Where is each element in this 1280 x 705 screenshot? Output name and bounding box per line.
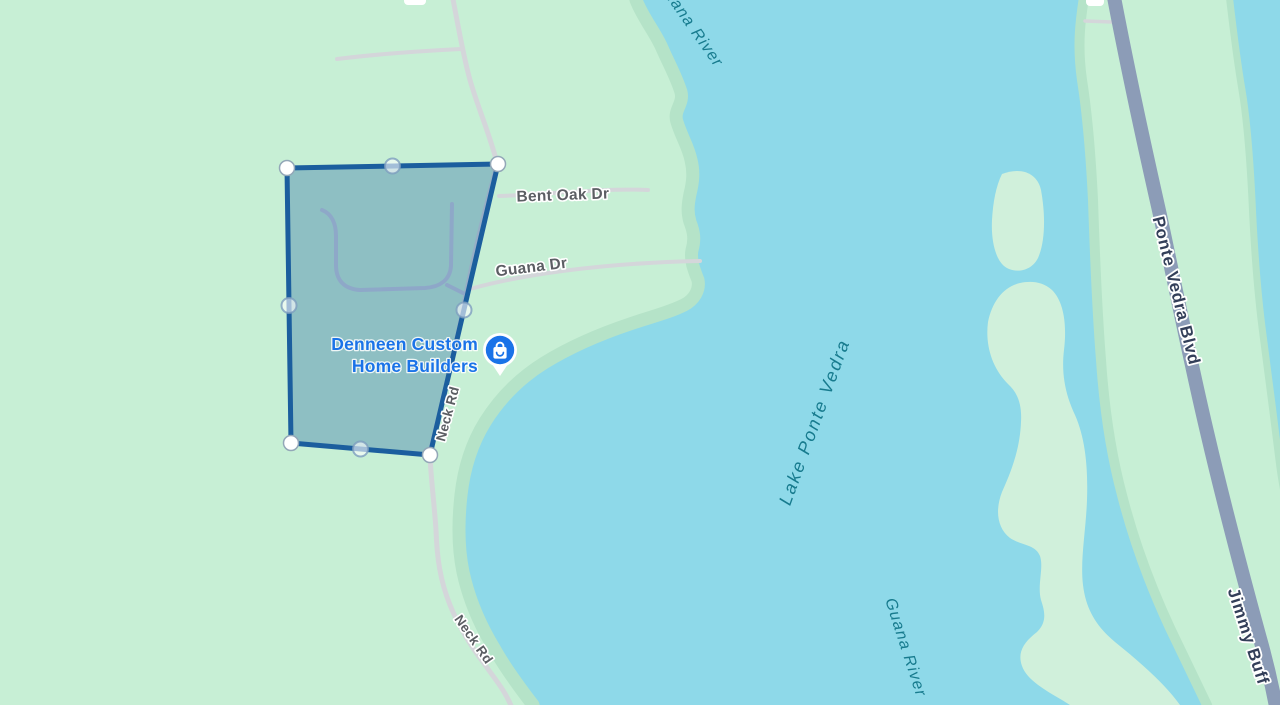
island-north [992, 171, 1044, 271]
vertex-handle-bottom-left[interactable] [284, 436, 299, 451]
vertex-handle-top-right[interactable] [491, 157, 506, 172]
midpoint-handle-left[interactable] [282, 298, 297, 313]
vertex-handle-bottom-right[interactable] [423, 448, 438, 463]
label-bent-oak-dr: Bent Oak Dr [516, 185, 609, 205]
midpoint-handle-bottom[interactable] [353, 442, 368, 457]
business-label-line2[interactable]: Home Builders [352, 356, 478, 376]
map-canvas[interactable]: Guana River Lake Ponte Vedra Guana River… [0, 0, 1280, 705]
clipped-label-fragment [1086, 0, 1104, 6]
road-side-spur-northeast [1085, 21, 1112, 22]
vertex-handle-top-left[interactable] [280, 161, 295, 176]
business-label-line1[interactable]: Denneen Custom [331, 334, 478, 354]
midpoint-handle-right[interactable] [457, 303, 472, 318]
midpoint-handle-top[interactable] [385, 159, 400, 174]
clipped-label-fragment [404, 0, 426, 5]
